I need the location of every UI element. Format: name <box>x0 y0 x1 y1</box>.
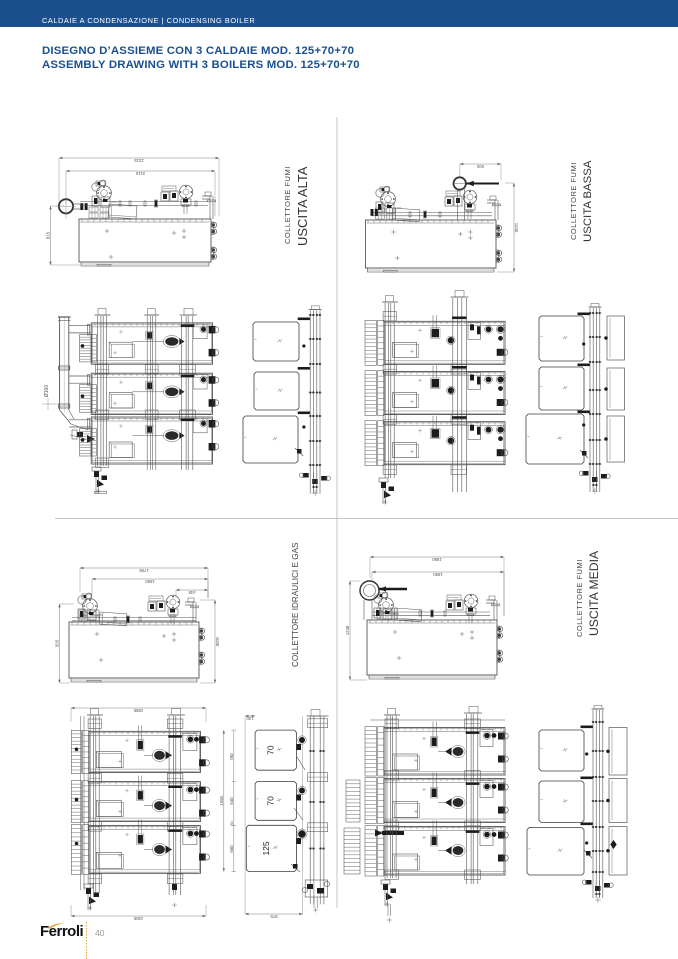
svg-text:1230: 1230 <box>514 223 519 233</box>
svg-text:815: 815 <box>46 231 51 239</box>
svg-text:70: 70 <box>266 796 276 806</box>
svg-text:600: 600 <box>476 164 484 169</box>
svg-text:50: 50 <box>230 821 234 825</box>
svg-text:875: 875 <box>270 914 278 919</box>
svg-text:1230: 1230 <box>345 625 350 635</box>
svg-text:125: 125 <box>261 841 271 855</box>
svg-text:130: 130 <box>246 716 254 721</box>
svg-text:1990: 1990 <box>432 557 442 562</box>
svg-text:1795: 1795 <box>139 568 149 573</box>
svg-text:1045: 1045 <box>215 637 220 647</box>
svg-text:1890: 1890 <box>433 572 443 577</box>
svg-text:595: 595 <box>55 639 60 647</box>
svg-text:2215: 2215 <box>134 158 144 163</box>
svg-text:660: 660 <box>229 845 234 853</box>
svg-text:1905: 1905 <box>133 916 143 921</box>
svg-text:1885: 1885 <box>133 708 143 713</box>
svg-text:1950: 1950 <box>219 795 224 805</box>
svg-text:445: 445 <box>188 590 196 595</box>
svg-text:70: 70 <box>266 745 276 755</box>
svg-text:780: 780 <box>229 753 234 761</box>
svg-text:1580: 1580 <box>145 579 155 584</box>
svg-text:540: 540 <box>229 797 234 805</box>
svg-text:Ø160: Ø160 <box>44 385 50 397</box>
svg-text:2110: 2110 <box>135 171 145 176</box>
